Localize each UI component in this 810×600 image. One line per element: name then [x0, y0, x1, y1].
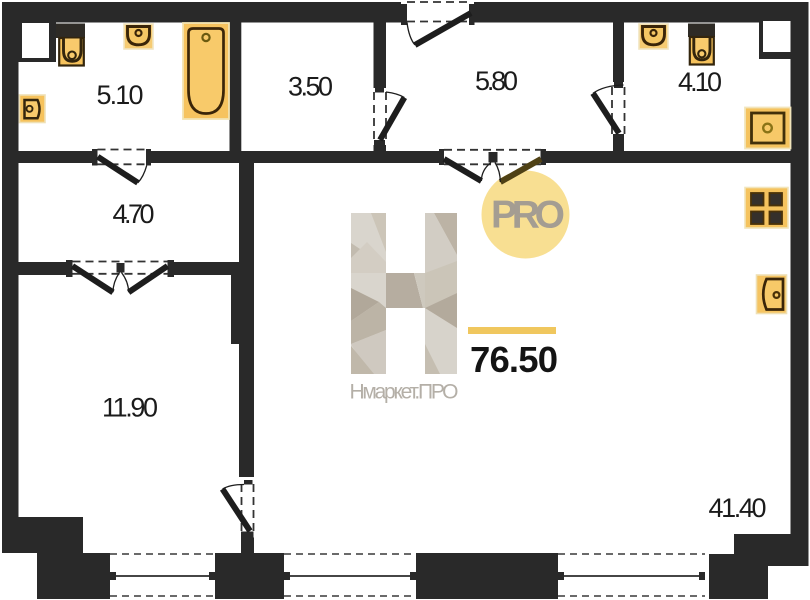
svg-text:5.80: 5.80	[475, 66, 518, 96]
svg-text:3.50: 3.50	[288, 72, 333, 102]
svg-text:11.90: 11.90	[102, 393, 158, 423]
svg-text:41.40: 41.40	[709, 493, 767, 523]
svg-text:76.50: 76.50	[470, 339, 558, 380]
svg-text:5.10: 5.10	[97, 80, 144, 110]
svg-text:4.10: 4.10	[678, 67, 722, 97]
svg-text:4.70: 4.70	[113, 199, 155, 229]
svg-text:PRO: PRO	[491, 194, 565, 237]
svg-text:Нмаркет.ПРО: Нмаркет.ПРО	[350, 381, 459, 404]
